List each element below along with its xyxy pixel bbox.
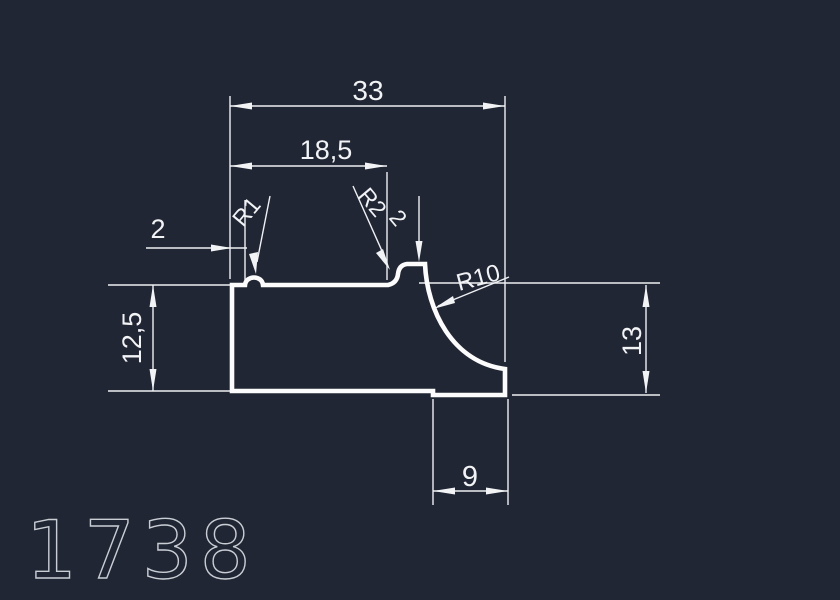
label-cove-radius: R10	[454, 259, 504, 296]
arrow-125-bottom	[150, 369, 157, 391]
arrow-9-left	[433, 488, 455, 495]
label-boss-callout: 2	[384, 205, 412, 232]
arrowheads	[150, 103, 650, 495]
arrow-boss	[416, 241, 423, 262]
label-boss-fillet-radius: R2	[353, 183, 392, 222]
arrow-185-left	[230, 163, 252, 170]
arrow-33-right	[483, 103, 505, 110]
label-notch-offset: 2	[150, 214, 165, 244]
arrow-2	[211, 245, 232, 252]
arrow-13-top	[643, 285, 650, 307]
label-right-height: 13	[617, 326, 647, 356]
arrow-9-right	[486, 488, 508, 495]
arrow-185-right	[365, 163, 387, 170]
arrow-r2	[376, 249, 390, 270]
dimension-lines	[108, 96, 660, 505]
arrow-33-left	[230, 103, 252, 110]
label-notch-radius: R1	[227, 192, 266, 231]
label-step-width: 18,5	[300, 135, 353, 165]
label-left-height: 12,5	[117, 312, 147, 365]
arrow-r1	[249, 252, 258, 274]
cad-canvas: 33 18,5 2 R1 R2 2 R10 12,5 13 9 1738	[0, 0, 840, 600]
arrow-125-top	[150, 285, 157, 307]
part-number: 1738	[26, 504, 258, 597]
label-overall-width: 33	[352, 75, 383, 106]
arrow-13-bottom	[643, 371, 650, 393]
label-bottom-step: 9	[462, 461, 478, 493]
arrow-r10	[433, 296, 455, 309]
